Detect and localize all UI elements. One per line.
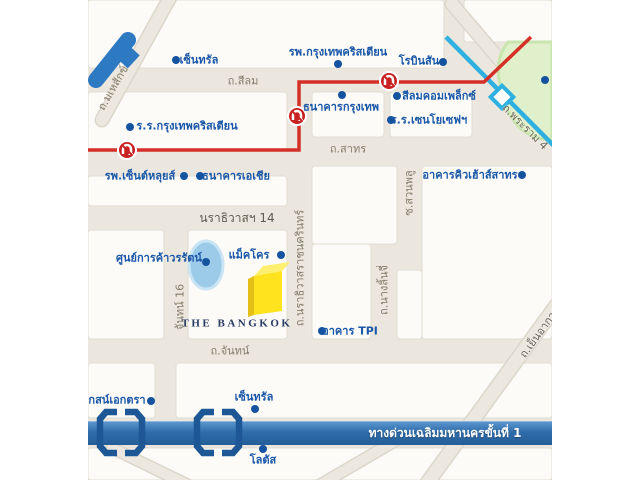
poi-label-asia-bank: ธนาคารเอเชีย bbox=[202, 171, 270, 182]
poi-label-silom-complex: สีลมคอมเพล็กซ์ bbox=[402, 91, 476, 102]
road-label-silom: ถ.สีลม bbox=[228, 76, 259, 87]
poi-dot bbox=[202, 258, 210, 266]
poi-dot bbox=[259, 445, 267, 453]
road-label-nang-linchi: ถ.นางลิ้นจี่ bbox=[379, 265, 390, 315]
expressway-symbols bbox=[88, 0, 552, 480]
poi-dot bbox=[277, 251, 285, 259]
poi-label-qhouse-sathorn: อาคารคิวเฮ้าส์สาทร bbox=[422, 170, 517, 181]
road-label-sathorn: ถ.สาทร bbox=[330, 144, 366, 155]
poi-label-makro: แม็คโคร bbox=[229, 250, 270, 261]
poi-label-bkk-christian-hospital: รพ.กรุงเทพคริสเตียน bbox=[289, 47, 387, 58]
poi-dot bbox=[541, 76, 549, 84]
poi-dot bbox=[393, 92, 401, 100]
poi-label-st-louis-hospital: รพ.เซ็นต์หลุยส์ bbox=[105, 171, 175, 182]
ramp-bracket-icons bbox=[100, 412, 239, 453]
poi-label-robinson: โรบินสัน bbox=[399, 56, 440, 67]
poi-label-st-joseph-school: ร.ร.เซนโยเซฟฯ bbox=[391, 115, 467, 126]
poi-label-bangkok-bank: ธนาคารกรุงเทพ bbox=[303, 102, 379, 113]
poi-label-central-silom: เซ็นทรัล bbox=[180, 55, 219, 66]
poi-dot bbox=[126, 123, 134, 131]
map-page: ทางด่วนเฉลิมมหานครขั้นที่ 1 เซ็นทรัล รพ.… bbox=[0, 0, 640, 480]
poi-label-worarat-mall: ศูนย์การค้าวรรัตน์ bbox=[116, 253, 202, 264]
poi-dot bbox=[251, 405, 259, 413]
road-label-suan-phlu: ซ.สวนพลู bbox=[404, 170, 415, 215]
poi-label-tpi-building: อาคาร TPI bbox=[322, 326, 378, 337]
map-canvas: ทางด่วนเฉลิมมหานครขั้นที่ 1 เซ็นทรัล รพ.… bbox=[88, 0, 552, 480]
poi-dot bbox=[439, 58, 447, 66]
road-label-narathiwat-14: นราธิวาสฯ 14 bbox=[199, 212, 274, 224]
poi-dot bbox=[334, 60, 342, 68]
poi-label-central-chan: เซ็นทรัล bbox=[235, 392, 274, 403]
poi-dot bbox=[180, 172, 188, 180]
poi-label-ektra: กสน์เอกตรา bbox=[88, 395, 145, 406]
poi-dot bbox=[338, 91, 346, 99]
poi-label-bkk-christian-school: ร.ร.กรุงเทพคริสเตียน bbox=[136, 121, 237, 132]
project-name-the-bangkok: THE BANGKOK bbox=[182, 319, 293, 330]
road-label-narathiwat-ratchanakharin: ถ.นราธิวาสราชนครินทร์ bbox=[295, 210, 306, 327]
poi-label-lotus: โลตัส bbox=[250, 455, 277, 466]
expressway-label: ทางด่วนเฉลิมมหานครขั้นที่ 1 bbox=[369, 427, 522, 439]
road-label-chan: ถ.จันทน์ bbox=[211, 346, 250, 357]
poi-dot bbox=[518, 171, 526, 179]
poi-dot bbox=[147, 397, 155, 405]
